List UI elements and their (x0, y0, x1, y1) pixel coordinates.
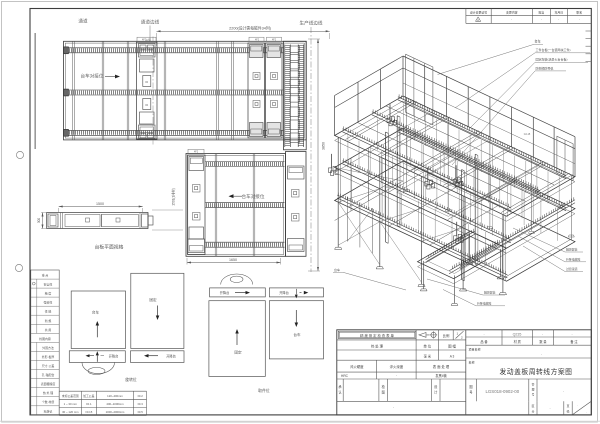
svg-text:1500: 1500 (96, 202, 104, 206)
svg-text:C2-15: C2-15 (460, 258, 467, 261)
svg-text:通道: 通道 (78, 18, 88, 25)
svg-text:触摸屏装: 触摸屏装 (566, 247, 578, 252)
svg-text:开降台: 开降台 (109, 354, 119, 359)
svg-text:4F2纠错: 4F2纠错 (142, 38, 152, 42)
svg-text:开降台: 开降台 (220, 290, 230, 295)
svg-text:号: 号 (532, 393, 535, 397)
svg-text:热 处 理: 热 处 理 (43, 390, 53, 395)
svg-text:精 度 测 定 检 查 表 单: 精 度 测 定 检 查 表 单 (360, 333, 394, 338)
svg-text:固定焊装(满员七台台板): 固定焊装(满员七台台板) (536, 57, 568, 62)
svg-text:C2-15: C2-15 (385, 186, 392, 189)
svg-text:检图内容: 检图内容 (39, 336, 51, 341)
svg-text:管: 管 (532, 383, 535, 387)
svg-text:Q235: Q235 (513, 333, 522, 337)
svg-text:图 幅: 图 幅 (448, 344, 456, 349)
svg-text:±0.3: ±0.3 (137, 402, 143, 406)
svg-text:A 3: A 3 (450, 355, 455, 359)
svg-text:·: · (511, 18, 512, 22)
svg-text:开降台: 开降台 (166, 354, 176, 359)
svg-text:生产线边线: 生产线边线 (300, 20, 323, 27)
svg-text:台板平面视格: 台板平面视格 (95, 244, 124, 251)
svg-text:淬火深度: 淬火深度 (390, 364, 404, 369)
svg-text:新 规: 新 规 (45, 318, 52, 323)
svg-text:项目名称: 项目名称 (468, 347, 480, 352)
svg-text:强合性: 强合性 (44, 300, 53, 305)
svg-text:单 位: 单 位 (423, 344, 431, 349)
svg-text:个数·材质: 个数·材质 (42, 399, 55, 404)
svg-text:台车: 台车 (92, 310, 100, 315)
svg-text:C2-15: C2-15 (524, 133, 531, 136)
svg-text:外形·板厚: 外形·板厚 (42, 354, 55, 359)
svg-text:页: 页 (567, 404, 570, 408)
svg-text:300: 300 (37, 218, 41, 224)
svg-text:热 处 理: 热 处 理 (371, 344, 384, 349)
svg-text:共 用: 共 用 (45, 327, 52, 332)
svg-text:取件位: 取件位 (258, 388, 270, 393)
svg-text:比例: 比例 (443, 333, 450, 338)
svg-text:图: 图 (382, 391, 385, 395)
svg-text:通道边线: 通道边线 (141, 19, 160, 26)
svg-text:·: · (549, 407, 550, 411)
svg-text:担当: 担当 (538, 9, 544, 14)
svg-text:职名: 职名 (576, 9, 582, 14)
svg-text:性 能: 性 能 (45, 309, 52, 314)
svg-text:台车对接位: 台车对接位 (242, 193, 265, 200)
svg-text:年月日: 年月日 (554, 9, 563, 14)
svg-text:·: · (483, 332, 484, 336)
svg-text:台车: 台车 (334, 267, 340, 272)
svg-text:数 量: 数 量 (539, 339, 547, 344)
svg-text:升降电故障: 升降电故障 (566, 256, 581, 261)
svg-text:材 质: 材 质 (514, 339, 522, 344)
svg-text:·: · (563, 390, 564, 394)
svg-text:品 番: 品 番 (480, 339, 488, 344)
svg-text:·: · (558, 18, 559, 22)
svg-text:·: · (586, 410, 587, 414)
svg-text:尺寸·公差: 尺寸·公差 (42, 363, 55, 368)
svg-text:4F2: 4F2 (194, 151, 199, 154)
svg-text:淬火硬度: 淬火硬度 (350, 364, 364, 369)
svg-text:号: 号 (469, 390, 472, 395)
svg-text:名称: 名称 (468, 360, 474, 365)
svg-text:1000~2000mm: 1000~2000mm (106, 410, 125, 414)
svg-text:ID: ID (146, 103, 149, 107)
svg-text:加工公差: 加工公差 (83, 394, 94, 398)
svg-text:1 ~ 30 mm: 1 ~ 30 mm (64, 402, 78, 406)
svg-text:·: · (541, 18, 542, 22)
svg-text:30 ~ 120 mm: 30 ~ 120 mm (62, 410, 79, 414)
svg-text:2200(设计需每磁件34列): 2200(设计需每磁件34列) (229, 26, 272, 31)
svg-text:台车对接位: 台车对接位 (81, 73, 104, 80)
svg-text:防侧倾防导轨: 防侧倾防导轨 (536, 65, 554, 70)
svg-text:1650: 1650 (229, 258, 237, 262)
svg-text:±0.2: ±0.2 (137, 394, 143, 398)
svg-text:表面粗糙度: 表面粗糙度 (41, 381, 56, 386)
svg-text:4F2: 4F2 (255, 39, 260, 42)
svg-text:±0.15: ±0.15 (85, 410, 92, 414)
svg-text:毫 米: 毫 米 (424, 354, 432, 359)
svg-text:安全性: 安全性 (44, 282, 53, 287)
svg-text:120~400mm: 120~400mm (107, 394, 123, 398)
svg-text:±0.5: ±0.5 (137, 410, 143, 414)
svg-text:未标公差范围: 未标公差范围 (62, 394, 79, 398)
svg-text:·: · (542, 332, 543, 336)
svg-text:台车: 台车 (293, 332, 301, 337)
svg-text:·: · (393, 406, 394, 410)
svg-text:发黑4微: 发黑4微 (435, 373, 447, 378)
svg-text:升降电故障: 升降电故障 (477, 300, 492, 305)
svg-text:1501(1排村): 1501(1排村) (171, 188, 176, 205)
svg-text:分: 分 (532, 410, 535, 414)
svg-text:±0.1: ±0.1 (86, 402, 92, 406)
svg-text:开降台: 开降台 (279, 290, 289, 295)
svg-text:3850: 3850 (322, 142, 326, 150)
svg-text:理: 理 (532, 388, 535, 392)
svg-text:·: · (577, 404, 578, 408)
svg-text:触摸屏装: 触摸屏装 (484, 290, 496, 295)
svg-text:·: · (571, 332, 572, 336)
svg-text:图: 图 (469, 385, 472, 389)
svg-text:设计变更证号: 设计变更证号 (470, 9, 487, 14)
svg-text:HRC: HRC (341, 374, 349, 378)
svg-text:过渡滚道: 过渡滚道 (566, 266, 578, 271)
svg-text:发动盖板周转线方案图: 发动盖板周转线方案图 (500, 367, 573, 376)
svg-text:台车: 台车 (534, 38, 540, 43)
svg-text:区: 区 (532, 404, 535, 408)
svg-text:·: · (579, 18, 580, 22)
svg-text:固定: 固定 (149, 297, 157, 302)
svg-text:LGS018-0902-00: LGS018-0902-00 (485, 389, 519, 394)
svg-text:精 度: 精 度 (45, 291, 52, 296)
svg-text:400~1000mm: 400~1000mm (106, 402, 124, 406)
svg-text:ID: ID (146, 80, 149, 84)
svg-text:备 注: 备 注 (570, 339, 578, 344)
svg-text:标游记: 标游记 (44, 408, 53, 413)
svg-text:固定: 固定 (234, 350, 242, 355)
svg-text:孔·轴配合: 孔·轴配合 (42, 372, 55, 377)
svg-text:变更内容: 变更内容 (506, 9, 518, 14)
svg-text:旋转位: 旋转位 (125, 377, 137, 382)
svg-text:4F2: 4F2 (272, 39, 277, 42)
svg-text:·: · (396, 374, 397, 378)
svg-text:·: · (541, 353, 542, 357)
svg-text:表 面 处 理: 表 面 处 理 (433, 364, 450, 369)
svg-text:码: 码 (567, 410, 570, 414)
svg-text:外围方法: 外围方法 (42, 345, 54, 350)
svg-text:重 点: 重 点 (42, 273, 49, 278)
svg-text:工件台板(一台装两块工件): 工件台板(一台装两块工件) (536, 47, 571, 52)
